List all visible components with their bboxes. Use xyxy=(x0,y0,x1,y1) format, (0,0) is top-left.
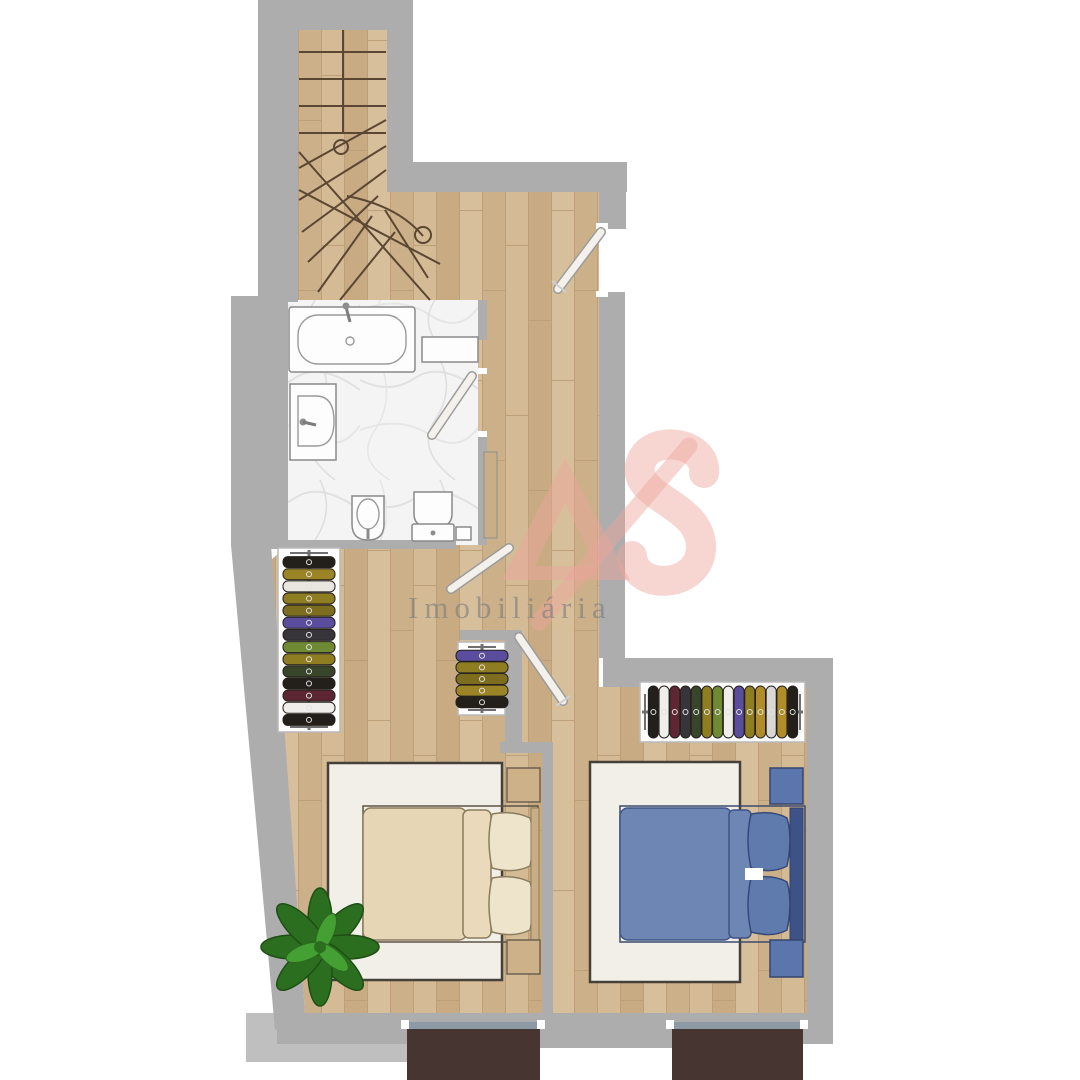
nightstand-right-bottom xyxy=(770,940,803,977)
wall-bathroom-right-upper xyxy=(478,300,487,340)
pillow xyxy=(748,877,790,935)
sheet-fold xyxy=(745,868,763,880)
headboard xyxy=(790,808,803,942)
wall-between-bedrooms xyxy=(542,742,553,1013)
bidet xyxy=(352,496,384,540)
floor-plan-image: Imobiliária xyxy=(0,0,1080,1080)
toilet-paper-holder xyxy=(456,527,471,540)
wall-left-upper xyxy=(258,0,298,302)
toilet xyxy=(412,492,454,541)
pillow xyxy=(748,813,790,871)
nightstand-left-top xyxy=(507,768,540,802)
radiator-shelf xyxy=(484,452,497,538)
wardrobe-left xyxy=(278,548,340,732)
wall-right-outer xyxy=(807,687,833,1013)
watermark-text: Imobiliária xyxy=(408,590,612,626)
balcony-right xyxy=(666,1020,808,1080)
bathtub xyxy=(289,303,415,373)
nightstand-right-top xyxy=(770,768,803,804)
balcony-left xyxy=(401,1020,545,1080)
pillow xyxy=(489,877,533,935)
wardrobe-small xyxy=(456,642,508,715)
wall-hall-top xyxy=(387,162,627,192)
plant xyxy=(261,888,379,1006)
floor-plan-canvas xyxy=(0,0,1080,1080)
sink xyxy=(290,384,336,460)
wall-stairs-right xyxy=(387,0,413,172)
bath-niche xyxy=(422,337,478,362)
wardrobe-right xyxy=(640,682,805,742)
headboard xyxy=(531,808,539,942)
wall-bathroom-left xyxy=(231,296,288,545)
pillow xyxy=(489,813,533,871)
wall-between-balconies xyxy=(540,1013,672,1048)
nightstand-left-bottom xyxy=(507,940,540,974)
clothes-rack-small xyxy=(456,650,508,707)
clothes-rack-right xyxy=(648,686,797,738)
